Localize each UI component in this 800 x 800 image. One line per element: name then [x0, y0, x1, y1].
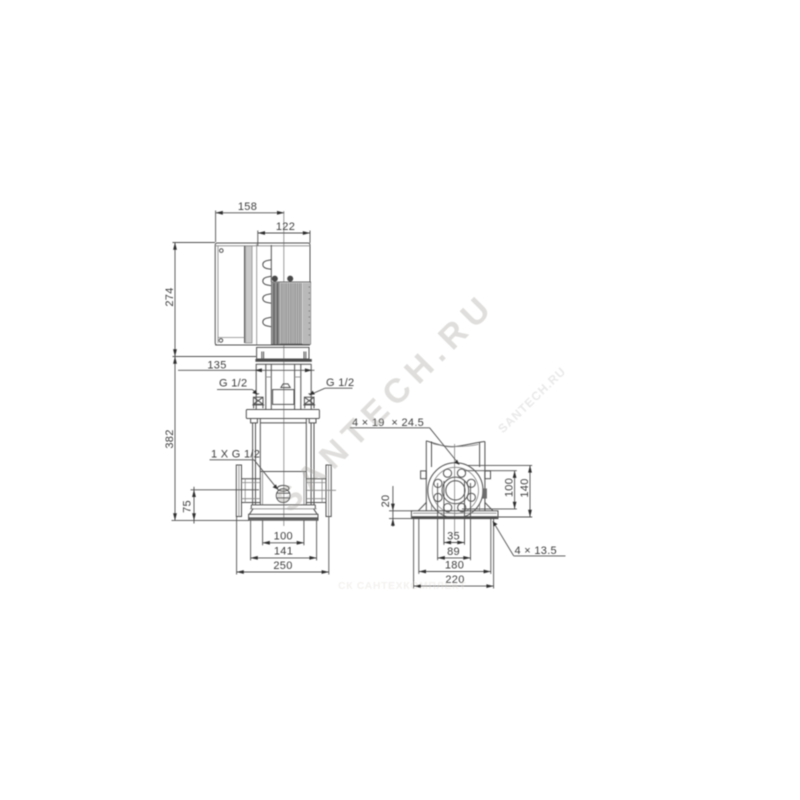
- svg-text:274: 274: [164, 287, 176, 306]
- svg-text:4 × 13.5: 4 × 13.5: [515, 545, 557, 557]
- svg-text:141: 141: [274, 546, 293, 558]
- svg-text:100: 100: [274, 531, 293, 543]
- svg-text:180: 180: [445, 559, 464, 571]
- svg-text:250: 250: [273, 560, 292, 572]
- svg-text:100: 100: [504, 478, 516, 497]
- svg-text:135: 135: [207, 359, 226, 371]
- svg-text:382: 382: [164, 429, 176, 448]
- svg-text:158: 158: [238, 201, 257, 213]
- svg-text:89: 89: [447, 546, 460, 558]
- svg-text:75: 75: [182, 500, 194, 513]
- svg-text:1 X G 1/2: 1 X G 1/2: [211, 448, 260, 460]
- svg-text:G 1/2: G 1/2: [219, 378, 247, 390]
- svg-text:122: 122: [276, 221, 295, 233]
- svg-text:220: 220: [445, 574, 464, 586]
- svg-text:4 × 19 × 24.5: 4 × 19 × 24.5: [352, 417, 424, 429]
- svg-text:20: 20: [380, 495, 392, 508]
- svg-text:35: 35: [447, 530, 460, 542]
- svg-text:140: 140: [519, 478, 531, 497]
- svg-text:G 1/2: G 1/2: [326, 377, 354, 389]
